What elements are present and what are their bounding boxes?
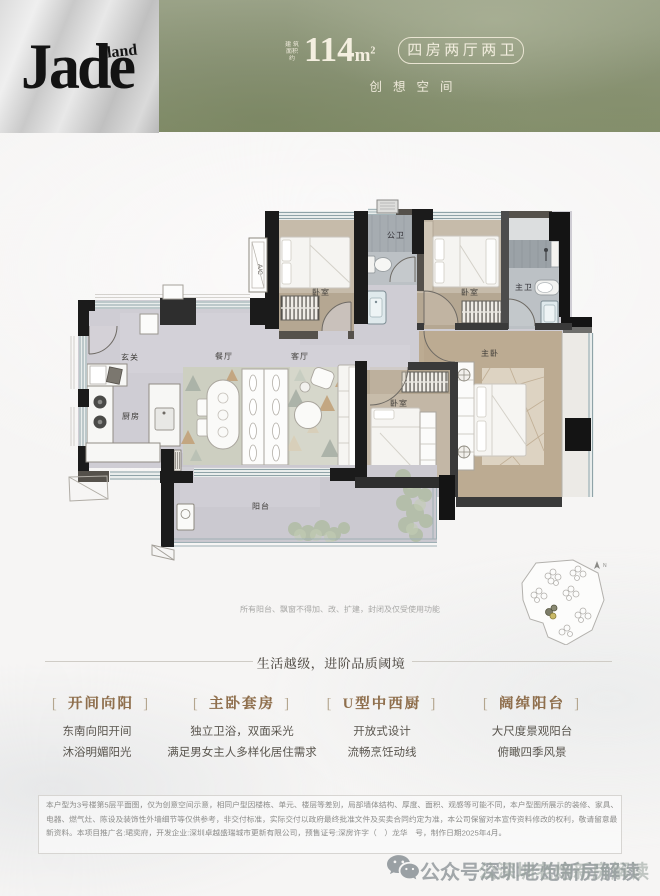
svg-text:主卧: 主卧: [481, 349, 499, 358]
svg-text:N: N: [603, 563, 607, 569]
svg-text:客厅: 客厅: [291, 352, 309, 361]
svg-text:厨房: 厨房: [122, 412, 140, 421]
svg-text:卧室: 卧室: [312, 288, 330, 297]
svg-text:主卫: 主卫: [515, 283, 533, 292]
svg-text:阳台: 阳台: [252, 502, 270, 511]
svg-text:公卫: 公卫: [387, 231, 405, 240]
svg-text:卧室: 卧室: [390, 399, 408, 408]
svg-text:卧室: 卧室: [461, 288, 479, 297]
svg-text:玄关: 玄关: [121, 353, 139, 362]
svg-text:餐厅: 餐厅: [215, 352, 233, 361]
